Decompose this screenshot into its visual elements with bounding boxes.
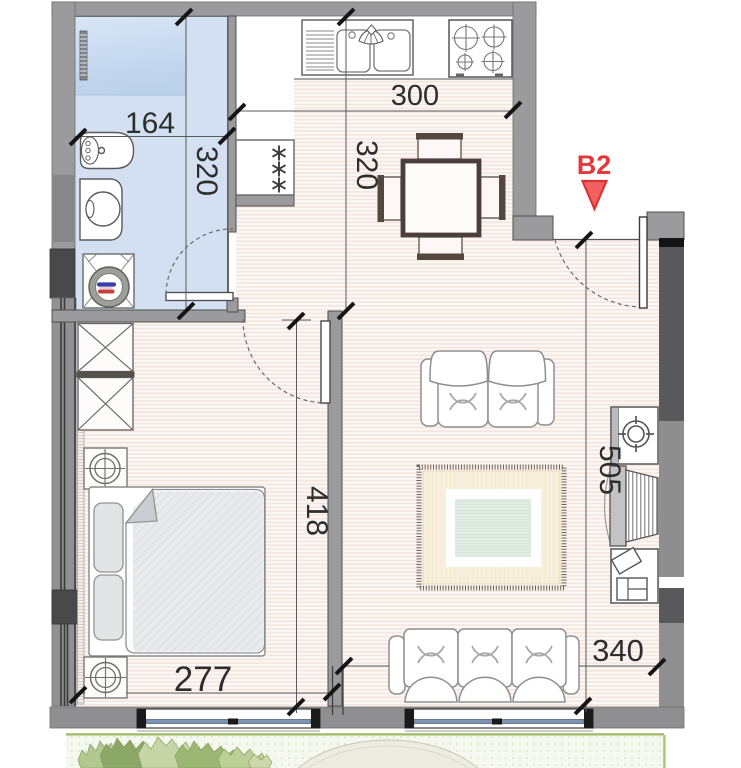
svg-text:277: 277 (174, 660, 232, 699)
svg-text:320: 320 (190, 146, 223, 196)
svg-text:300: 300 (391, 80, 439, 112)
svg-text:320: 320 (350, 140, 383, 190)
svg-text:164: 164 (125, 107, 175, 140)
svg-text:B2: B2 (577, 150, 612, 180)
svg-text:340: 340 (592, 633, 644, 668)
svg-text:505: 505 (593, 445, 626, 495)
svg-text:418: 418 (300, 486, 333, 536)
